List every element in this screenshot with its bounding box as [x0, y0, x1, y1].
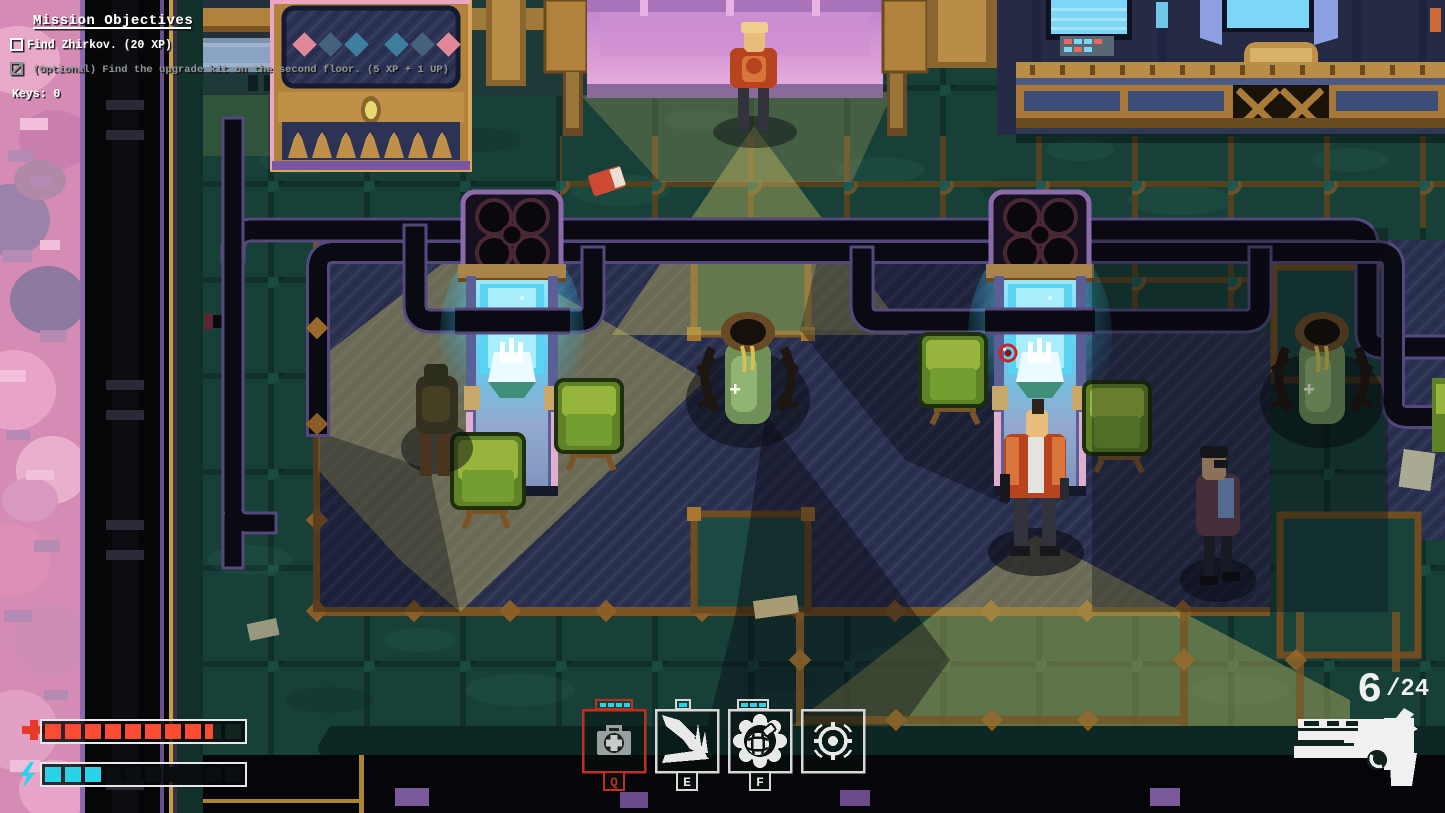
svg-text:E: E — [683, 775, 691, 790]
svg-text:6: 6 — [1357, 666, 1382, 714]
svg-text:/24: /24 — [1386, 676, 1429, 703]
svg-text:(Optional) Find the upgrade ki: (Optional) Find the upgrade kit on the s… — [33, 64, 449, 76]
svg-text:F: F — [756, 775, 764, 790]
svg-text:Mission Objectives: Mission Objectives — [33, 13, 193, 29]
svg-text:Find Zhirkov. (20 XP): Find Zhirkov. (20 XP) — [27, 39, 172, 52]
svg-text:Keys: 0: Keys: 0 — [12, 88, 60, 101]
svg-text:Q: Q — [610, 775, 618, 790]
